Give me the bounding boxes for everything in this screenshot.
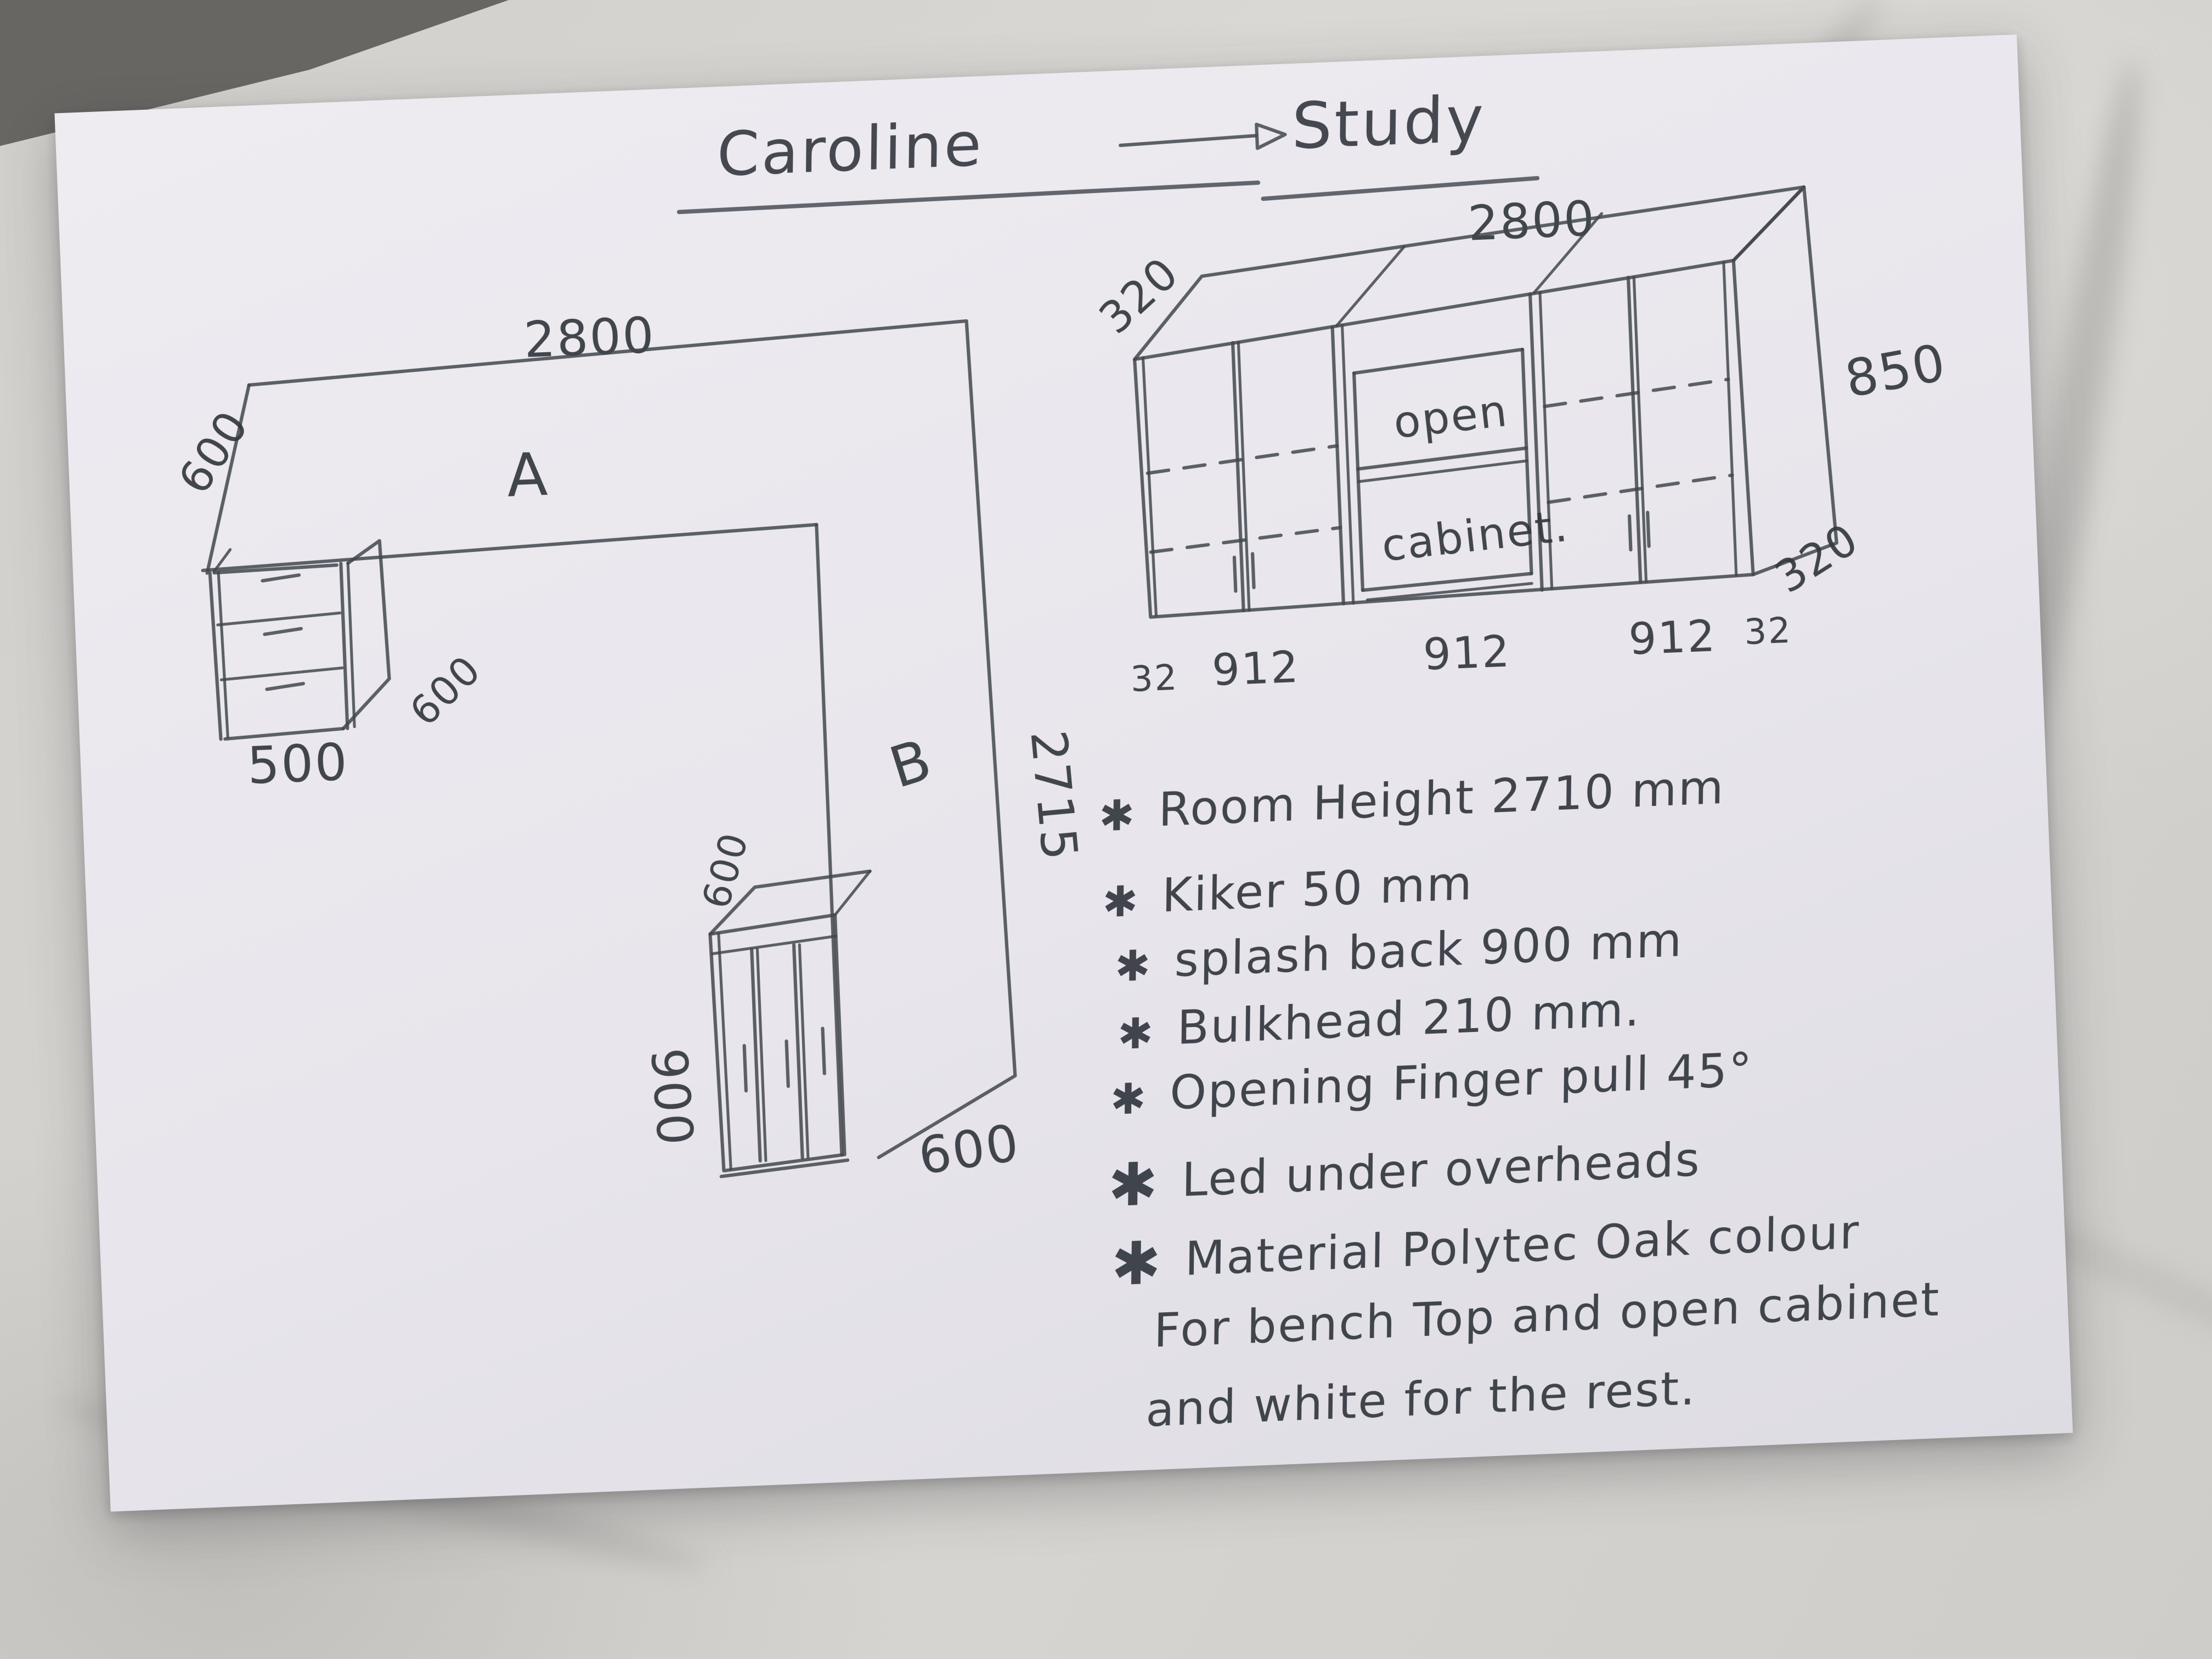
plan-bottom-depth-label: 600: [915, 1113, 1024, 1186]
lower-cabinet: [708, 871, 882, 1177]
note-led: ✱Led under overheads: [1108, 1120, 1701, 1214]
asterisk-bullet-icon: ✱: [1102, 877, 1139, 928]
drawer-unit: [209, 540, 392, 739]
asterisk-bullet-icon: ✱: [1108, 1149, 1160, 1220]
elevation-drawing: 2800 open cabinet.: [1088, 161, 2041, 763]
note-material-cont2: and white for the rest.: [1145, 1361, 1697, 1438]
elevation-dim-912-3: 912: [1628, 610, 1717, 664]
note-bulkhead: ✱Bulkhead 210 mm.: [1118, 981, 1641, 1058]
elevation-depth-bottom-label: 320: [1766, 513, 1867, 603]
elevation-dim-912-2: 912: [1422, 625, 1511, 680]
plan-cabinet-depth-label: 600: [695, 827, 758, 913]
asterisk-bullet-icon: ✱: [1099, 791, 1136, 842]
note-finger-pull: ✱Opening Finger pull 45°: [1110, 1042, 1754, 1122]
asterisk-bullet-icon: ✱: [1110, 1075, 1148, 1126]
elevation-dim-912-1: 912: [1211, 641, 1300, 696]
asterisk-bullet-icon: ✱: [1118, 1009, 1155, 1060]
sketch-paper: Caroline Study 2800: [54, 35, 2073, 1511]
cabinet-right-face: [1731, 187, 1838, 575]
plan-drawer-depth-label: 600: [401, 646, 490, 735]
plan-drawer-width-label: 500: [246, 732, 350, 795]
plan-section-a-label: A: [505, 440, 550, 510]
asterisk-bullet-icon: ✱: [1115, 942, 1152, 993]
plan-left-depth-label: 600: [168, 402, 259, 503]
plan-cabinet-width-label: 900: [639, 1046, 704, 1149]
elevation-dim-32-right: 32: [1743, 610, 1793, 653]
note-room-height: ✱Room Height 2710 mm: [1099, 759, 1725, 839]
note-splashback: ✱splash back 900 mm: [1115, 912, 1684, 990]
title-room: Study: [1291, 81, 1486, 164]
open-cabinet-label-1: open: [1391, 385, 1510, 448]
plan-right-length-label: 2715: [1019, 728, 1088, 864]
elevation-height-label: 850: [1841, 332, 1951, 409]
photo-of-sketch: Caroline Study 2800: [0, 0, 2212, 1659]
title-client: Caroline: [716, 110, 984, 191]
title-arrow-icon: [1114, 114, 1299, 170]
plan-section-b-label: B: [882, 727, 940, 801]
note-kicker: ✱Kiker 50 mm: [1102, 855, 1474, 926]
plan-drawing: 2800 600 A B 2715 500 600: [147, 268, 1171, 1238]
asterisk-bullet-icon: ✱: [1111, 1228, 1163, 1299]
